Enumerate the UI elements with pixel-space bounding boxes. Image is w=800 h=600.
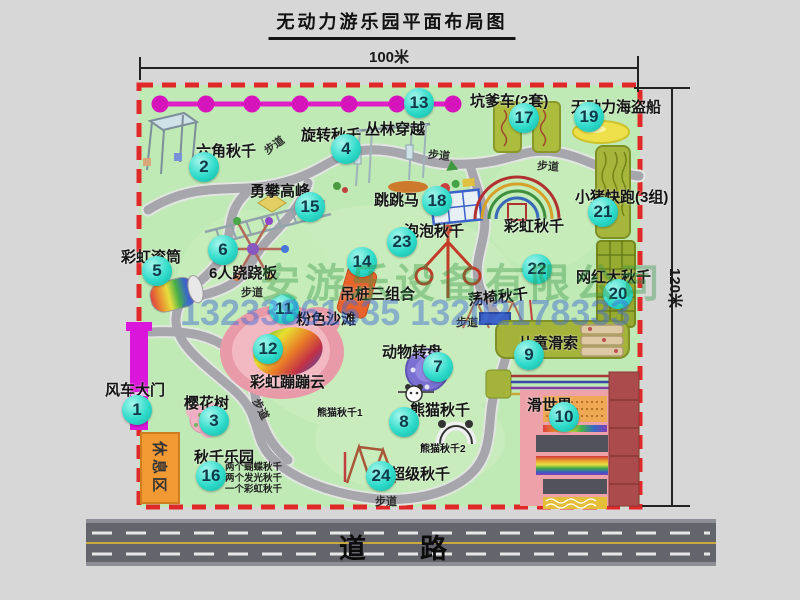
road-label: 道 路 [339, 527, 447, 566]
attraction-badge-21: 21 [588, 197, 618, 227]
swing-note-3: 一个彩虹秋千 [225, 484, 282, 495]
attraction-label-12: 彩虹蹦蹦云 [250, 371, 325, 392]
attraction-badge-12: 12 [253, 334, 283, 364]
attraction-badge-4: 4 [331, 134, 361, 164]
attraction-badge-2: 2 [189, 152, 219, 182]
park-map-plan: 无动力游乐园平面布局图 100米 120米 休息区 两个蝴蝶秋千 两个发光秋千 … [0, 0, 800, 600]
attraction-badge-6: 6 [208, 235, 238, 265]
dimension-label-width: 100米 [369, 46, 409, 67]
attraction-badge-18: 18 [422, 186, 452, 216]
dimension-label-height: 120米 [665, 268, 686, 308]
attraction-badge-15: 15 [295, 192, 325, 222]
attraction-badge-10: 10 [549, 402, 579, 432]
attraction-badge-7: 7 [423, 352, 453, 382]
attraction-badge-16: 16 [196, 461, 226, 491]
footpath-label-3: 步道 [536, 157, 559, 174]
attraction-badge-1: 1 [122, 395, 152, 425]
attraction-badge-17: 17 [509, 103, 539, 133]
attraction-label-8: 熊猫秋千 [410, 399, 470, 420]
attraction-badge-19: 19 [574, 102, 604, 132]
attraction-badge-8: 8 [389, 407, 419, 437]
attraction-badge-5: 5 [142, 256, 172, 286]
attraction-badge-13: 13 [404, 88, 434, 118]
swing-note-2: 两个发光秋千 [225, 473, 282, 484]
slide-world-icon [520, 372, 639, 509]
map-label-3: 熊猫秋千2 [420, 440, 466, 455]
rest-area-label: 休息区 [150, 441, 171, 495]
footpath-label-7: 步道 [375, 493, 397, 509]
page-title: 无动力游乐园平面布局图 [269, 8, 516, 40]
attraction-badge-9: 9 [514, 340, 544, 370]
watermark-phone: 13233861635 13202178333 [180, 292, 630, 334]
map-label-1: 彩虹秋千 [504, 215, 564, 236]
footpath-label-2: 步道 [427, 146, 451, 164]
map-label-2: 熊猫秋千1 [317, 404, 363, 419]
attraction-label-24: 超级秋千 [390, 463, 450, 484]
attraction-badge-3: 3 [199, 406, 229, 436]
attraction-label-18: 跳跳马 [374, 189, 419, 210]
attraction-label-13: 丛林穿越 [365, 118, 425, 139]
attraction-badge-24: 24 [366, 461, 396, 491]
attraction-label-17: 坑爹车(2套) [470, 90, 548, 111]
